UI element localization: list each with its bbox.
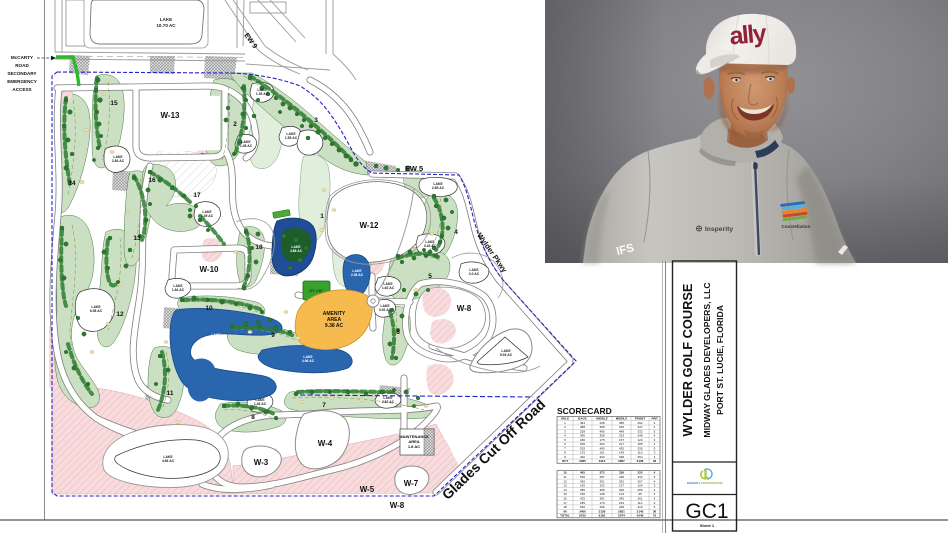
svg-text:W-12: W-12 [360, 221, 380, 230]
svg-text:9: 9 [271, 332, 275, 339]
svg-text:4249: 4249 [637, 514, 644, 518]
svg-text:PORT ST. LUCIE, FLORIDA: PORT ST. LUCIE, FLORIDA [715, 305, 725, 415]
svg-text:15: 15 [110, 100, 118, 107]
svg-text:271' x 92': 271' x 92' [309, 289, 323, 293]
svg-text:Constellation: Constellation [781, 224, 810, 229]
svg-text:SCORECARD: SCORECARD [557, 406, 612, 416]
svg-text:1.84 AC: 1.84 AC [172, 288, 185, 292]
svg-text:6: 6 [396, 329, 400, 336]
svg-text:ACCESS: ACCESS [12, 87, 31, 92]
svg-text:18: 18 [255, 244, 263, 251]
svg-text:5574: 5574 [618, 514, 625, 518]
svg-text:2.38 AC: 2.38 AC [351, 273, 364, 277]
svg-text:0.92 AC: 0.92 AC [379, 308, 392, 312]
svg-text:6181: 6181 [599, 514, 606, 518]
svg-text:BOHLER & ASSOCIATES INC: BOHLER & ASSOCIATES INC [687, 481, 723, 485]
svg-text:W-3: W-3 [254, 458, 269, 467]
svg-text:7: 7 [322, 402, 326, 409]
svg-text:8: 8 [251, 414, 255, 421]
svg-text:W-13: W-13 [161, 111, 181, 120]
svg-text:72: 72 [653, 514, 657, 518]
svg-text:2: 2 [233, 121, 237, 128]
svg-text:Insperity: Insperity [705, 226, 734, 233]
svg-text:1: 1 [320, 213, 324, 220]
svg-text:9.03 AC: 9.03 AC [500, 353, 513, 357]
svg-text:4.66 AC: 4.66 AC [162, 459, 175, 463]
svg-text:W-8: W-8 [390, 501, 405, 510]
svg-text:W-7: W-7 [404, 479, 419, 488]
svg-text:1.39 AC: 1.39 AC [201, 214, 214, 218]
svg-text:3: 3 [314, 117, 318, 124]
svg-text:LAKE: LAKE [160, 17, 173, 22]
svg-text:14: 14 [68, 180, 76, 187]
svg-text:1.62 AC: 1.62 AC [382, 286, 395, 290]
svg-text:1.35 AC: 1.35 AC [256, 92, 269, 96]
svg-text:2.65 AC: 2.65 AC [432, 186, 445, 190]
svg-text:10.70 AC: 10.70 AC [156, 23, 176, 28]
svg-text:2108: 2108 [637, 459, 644, 463]
svg-text:2.52 AC: 2.52 AC [382, 400, 395, 404]
svg-text:6755: 6755 [579, 514, 586, 518]
svg-text:ROAD: ROAD [15, 63, 29, 68]
svg-text:36: 36 [653, 459, 657, 463]
svg-text:1.46 AC: 1.46 AC [254, 402, 267, 406]
svg-text:GC1: GC1 [685, 500, 728, 523]
svg-text:11: 11 [167, 390, 174, 397]
svg-text:MIDWAY GLADES DEVELOPERS, LLC: MIDWAY GLADES DEVELOPERS, LLC [702, 282, 712, 437]
svg-text:EW 5: EW 5 [405, 164, 423, 173]
svg-text:4.88 AC: 4.88 AC [290, 249, 303, 253]
svg-text:W-8: W-8 [457, 304, 472, 313]
svg-text:EMERGENCY: EMERGENCY [7, 79, 37, 84]
svg-text:SECONDARY: SECONDARY [7, 71, 36, 76]
svg-text:3365: 3365 [579, 459, 586, 463]
svg-text:W-5: W-5 [360, 485, 375, 494]
svg-text:Sheet 1: Sheet 1 [700, 523, 715, 528]
svg-text:11.88 AC: 11.88 AC [209, 337, 224, 341]
svg-text:12: 12 [116, 311, 124, 318]
svg-text:6.98 AC: 6.98 AC [90, 309, 103, 313]
svg-text:13: 13 [133, 235, 141, 242]
svg-text:3.43 AC: 3.43 AC [424, 244, 437, 248]
svg-text:4: 4 [454, 229, 458, 236]
svg-text:W-10: W-10 [200, 265, 220, 274]
svg-text:2807: 2807 [618, 459, 625, 463]
svg-text:3113: 3113 [599, 459, 606, 463]
svg-text:1.55 AC: 1.55 AC [285, 136, 298, 140]
svg-text:17: 17 [193, 192, 201, 199]
svg-text:9.38 AC: 9.38 AC [325, 323, 344, 329]
svg-text:OUT: OUT [562, 459, 569, 463]
svg-text:16: 16 [148, 177, 156, 184]
svg-text:TOTAL: TOTAL [560, 514, 570, 518]
svg-text:5: 5 [428, 273, 432, 280]
svg-text:1.8 AC: 1.8 AC [408, 444, 420, 449]
svg-text:ally: ally [728, 19, 768, 50]
svg-text:10: 10 [205, 305, 213, 312]
svg-text:W-4: W-4 [318, 439, 333, 448]
svg-text:3.0 AC: 3.0 AC [469, 272, 480, 276]
svg-text:McCARTY: McCARTY [11, 55, 33, 60]
svg-text:2.84 AC: 2.84 AC [112, 159, 125, 163]
svg-text:4.96 AC: 4.96 AC [302, 359, 315, 363]
svg-text:WYLDER GOLF COURSE: WYLDER GOLF COURSE [680, 283, 695, 436]
svg-text:1.48 AC: 1.48 AC [240, 144, 253, 148]
